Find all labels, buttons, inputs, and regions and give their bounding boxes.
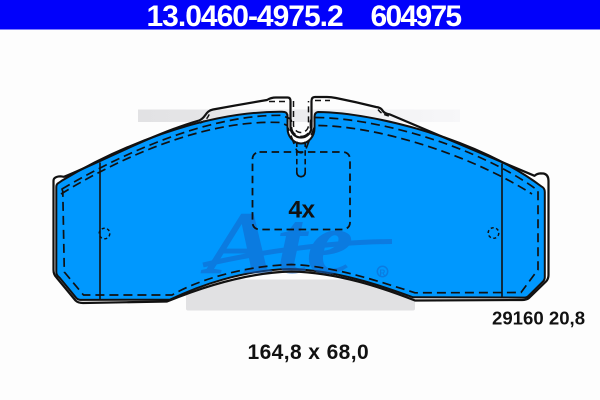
- svg-text:29160 20,8: 29160 20,8: [492, 308, 585, 329]
- svg-text:R: R: [380, 269, 386, 278]
- svg-text:164,8 x 68,0: 164,8 x 68,0: [248, 341, 370, 364]
- svg-text:13.0460-4975.2: 13.0460-4975.2: [147, 0, 344, 33]
- svg-text:4x: 4x: [288, 197, 315, 224]
- svg-text:604975: 604975: [371, 0, 462, 33]
